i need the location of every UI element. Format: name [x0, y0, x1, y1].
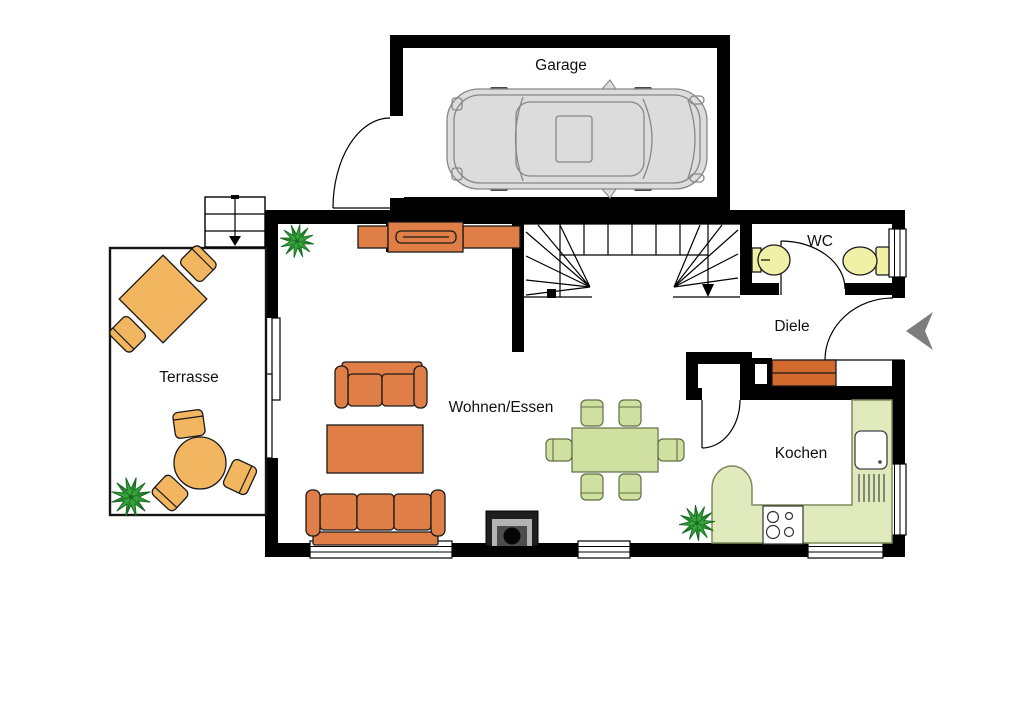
staircase [524, 224, 740, 298]
room-label-garage: Garage [535, 57, 587, 74]
room-label-kochen: Kochen [775, 445, 828, 462]
wall-top [265, 210, 905, 224]
hall-sideboard [772, 360, 836, 386]
car-icon [447, 80, 707, 198]
room-label-terrasse: Terrasse [159, 369, 218, 386]
sofa-three-seat [306, 490, 445, 545]
stair-down-arrow-icon [702, 284, 714, 297]
toilet-icon [843, 247, 889, 275]
room-label-wc: WC [807, 233, 833, 250]
sofa-two-seat [335, 362, 427, 408]
window-wc [889, 229, 906, 277]
kitchen-door [702, 400, 740, 448]
entrance-arrow-icon [906, 312, 933, 350]
kitchen-counter [712, 400, 892, 544]
dining-set [546, 400, 684, 500]
washbasin-icon [752, 245, 790, 275]
wood-stove-icon [486, 511, 538, 546]
floor-plan: Garage WC Diele Terrasse Wohnen/Essen Ko… [0, 0, 1024, 723]
stair-start-marker [547, 289, 556, 298]
wc-door-opening [779, 283, 845, 295]
dining-table [572, 428, 658, 472]
exterior-steps [205, 195, 265, 247]
window-dining [578, 541, 630, 558]
wall-wc-left [740, 210, 752, 295]
garage-side-door [333, 118, 390, 208]
room-label-wohnen-essen: Wohnen/Essen [449, 399, 554, 416]
steps-down-arrow-icon [229, 236, 241, 246]
plant-icon [277, 221, 316, 260]
tv-sideboard [358, 222, 520, 252]
garage-side-door-opening [389, 116, 404, 198]
room-label-diele: Diele [774, 318, 809, 335]
wall-kitchen-top [752, 386, 905, 400]
round-table [174, 437, 226, 489]
coffee-table [327, 425, 423, 473]
cooktop-icon [763, 506, 803, 544]
entrance-opening [891, 298, 906, 360]
